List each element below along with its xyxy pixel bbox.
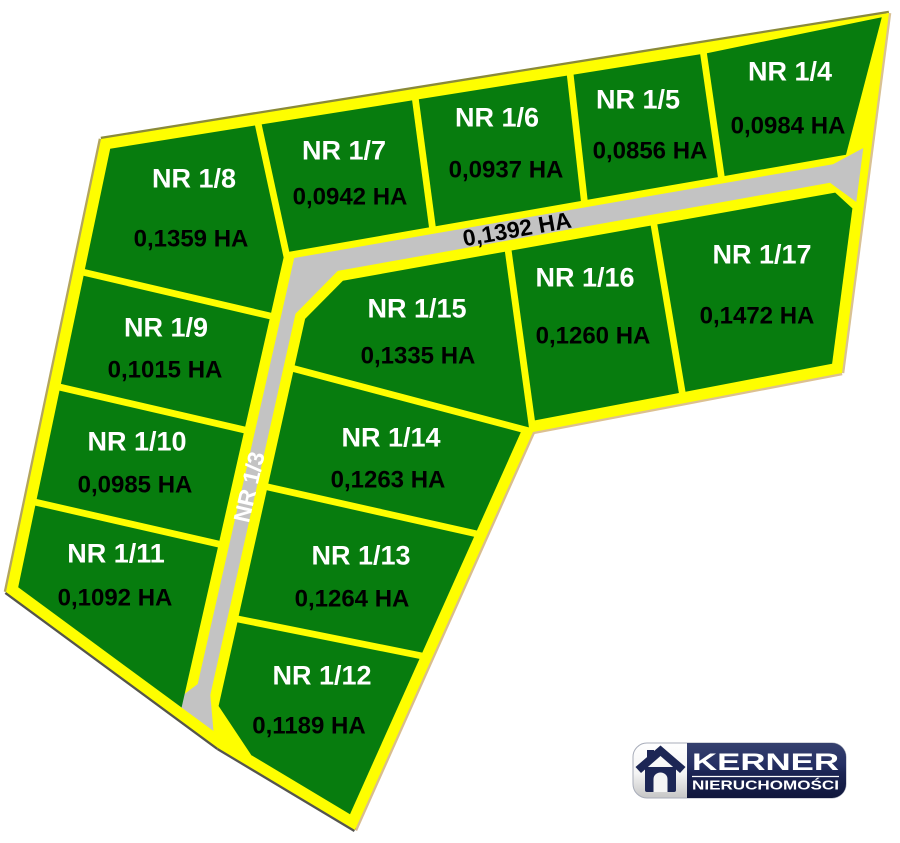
svg-text:NR 1/4: NR 1/4 — [748, 57, 832, 87]
svg-text:0,0942 HA: 0,0942 HA — [293, 184, 408, 211]
svg-text:NR 1/5: NR 1/5 — [596, 85, 680, 115]
svg-text:0,1335 HA: 0,1335 HA — [361, 343, 476, 370]
svg-text:0,1189 HA: 0,1189 HA — [252, 713, 365, 740]
svg-text:NR 1/14: NR 1/14 — [341, 423, 440, 453]
svg-text:0,0856 HA: 0,0856 HA — [593, 138, 708, 165]
svg-text:NR 1/10: NR 1/10 — [87, 427, 186, 457]
svg-text:NR 1/13: NR 1/13 — [311, 541, 410, 571]
svg-text:0,0984 HA: 0,0984 HA — [731, 113, 846, 140]
svg-text:NR 1/11: NR 1/11 — [67, 539, 165, 569]
svg-text:0,1260 HA: 0,1260 HA — [536, 323, 651, 350]
svg-text:0,0937 HA: 0,0937 HA — [449, 157, 564, 184]
svg-text:0,1264 HA: 0,1264 HA — [295, 586, 410, 613]
svg-text:0,1015 HA: 0,1015 HA — [108, 357, 223, 384]
svg-text:NR 1/8: NR 1/8 — [152, 164, 236, 194]
svg-text:0,0985 HA: 0,0985 HA — [78, 472, 193, 499]
svg-text:KERNER: KERNER — [692, 749, 839, 776]
svg-text:NR 1/16: NR 1/16 — [535, 263, 634, 293]
svg-text:NR 1/12: NR 1/12 — [272, 661, 371, 691]
svg-text:NR 1/9: NR 1/9 — [124, 313, 208, 343]
svg-text:NR 1/17: NR 1/17 — [712, 240, 811, 270]
svg-text:0,1263 HA: 0,1263 HA — [331, 467, 446, 494]
svg-text:NIERUCHOMOŚCI: NIERUCHOMOŚCI — [692, 778, 839, 793]
svg-text:0,1472 HA: 0,1472 HA — [700, 303, 815, 330]
svg-text:NR 1/7: NR 1/7 — [302, 136, 386, 166]
svg-text:0,1092 HA: 0,1092 HA — [58, 585, 173, 612]
svg-text:0,1359 HA: 0,1359 HA — [134, 226, 249, 253]
svg-text:NR 1/15: NR 1/15 — [367, 294, 466, 324]
svg-text:NR 1/6: NR 1/6 — [455, 103, 539, 133]
